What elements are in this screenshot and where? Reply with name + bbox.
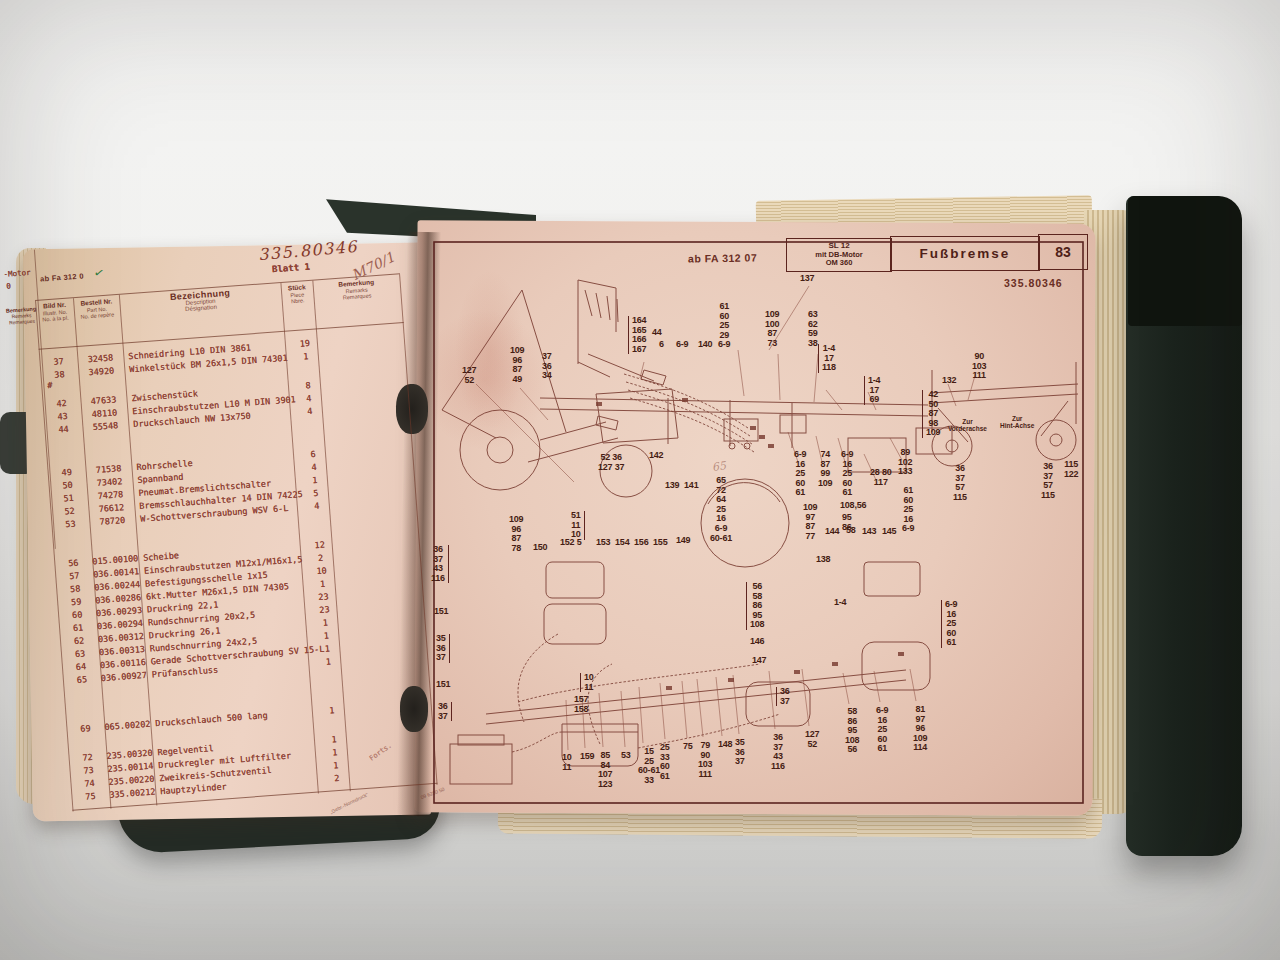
table-cell-qty: 1 — [317, 705, 348, 716]
table-cell-rem — [321, 349, 406, 355]
col-header-bild: Bild Nr. Illustr. No. No. à la pl. — [35, 301, 74, 323]
table-cell-rem — [329, 460, 414, 466]
table-cell-rem — [331, 486, 416, 492]
table-cell-rem — [320, 337, 405, 343]
table-cell-bestell: 065.00202 — [104, 720, 151, 732]
fragment-bemerkung-header: Bemerkung Remarks Remarques — [4, 305, 39, 325]
table-cell-bild: 72 — [68, 752, 107, 764]
diagram-callout: 1-4 — [834, 598, 846, 608]
table-cell-qty: 1 — [321, 760, 352, 771]
diagram-callout: 108,56 — [840, 501, 866, 511]
table-cell-qty: 12 — [304, 540, 335, 551]
table-cell-rem — [340, 616, 425, 622]
table-cell-bild: 43 — [43, 411, 82, 423]
diagram-callout: 148 — [718, 740, 732, 750]
diagram-callout: 90103111 — [972, 352, 986, 381]
diagram-callout: 65726425166-960-61 — [710, 476, 732, 543]
diagram-callout: 42508798109 — [922, 390, 940, 438]
diagram-callout: 75 — [683, 742, 693, 752]
diagram-callout: 363757115 — [1041, 462, 1055, 500]
diagram-callout: 616025166-9 — [902, 486, 914, 534]
diagram-callout: 63625938 — [808, 310, 818, 348]
table-cell-bild: 53 — [51, 519, 90, 531]
diagram-callout: 6-916256061 — [794, 450, 806, 498]
table-cell-bild: 74 — [70, 778, 109, 790]
diagram-callout: 109968749 — [510, 346, 524, 384]
diagram-callout: 115122 — [1064, 460, 1078, 479]
diagram-callout: 151 — [436, 680, 450, 690]
diagram-callout: 52 36127 37 — [598, 453, 624, 472]
table-cell-rem — [338, 577, 423, 583]
diagram-callout: 142 — [649, 451, 663, 461]
table-cell-bild: 60 — [58, 609, 97, 621]
table-cell-qty: 1 — [307, 579, 338, 590]
table-cell-rem — [342, 642, 427, 648]
diagram-callout: 6-916256061 — [941, 600, 957, 648]
diagram-callout: 164165166167 — [628, 316, 646, 354]
table-cell-bild: 58 — [56, 583, 95, 595]
diagram-callout: 147 — [752, 656, 766, 666]
diagram-callout: 153 154 156 155 — [596, 538, 667, 548]
diagram-callout: 1011 — [562, 753, 572, 772]
parts-table: Bild Nr. Illustr. No. No. à la pl. Beste… — [35, 273, 438, 813]
table-cell-rem — [349, 732, 434, 738]
table-cell-qty: 1 — [320, 747, 351, 758]
diagram-callout: 151 — [434, 607, 448, 617]
diagram-callouts: 65 137616025296-910910087736362593816416… — [428, 232, 1090, 810]
table-cell-rem — [335, 538, 420, 544]
table-cell-bestell: 78720 — [89, 515, 136, 527]
table-cell-rem — [343, 655, 428, 661]
diagram-callout: 12752 — [805, 730, 819, 749]
table-cell-rem — [336, 551, 421, 557]
table-cell-bild: 69 — [66, 723, 105, 735]
table-cell-qty: 23 — [309, 605, 340, 616]
diagram-callout: 363757115 — [953, 464, 967, 502]
diagram-callout: 511110 — [571, 511, 585, 540]
table-cell-bild: 61 — [59, 622, 98, 634]
table-cell-rem — [337, 564, 422, 570]
diagram-callout: 25336061 — [660, 743, 670, 781]
table-cell-qty: 1 — [310, 618, 341, 629]
table-cell-bild: 59 — [57, 596, 96, 608]
diagram-callout: 53 — [621, 751, 631, 761]
table-rows: 3732458Schneidring L10 DIN 3861193834920… — [39, 330, 437, 805]
diagram-callout: 58869510856 — [845, 707, 859, 755]
diagram-callout: 1-417118 — [818, 344, 836, 373]
table-cell-bild: 56 — [54, 558, 93, 570]
col-header-stueck: Stück Piece Nbre. — [281, 284, 314, 306]
table-cell-bestell: 34920 — [78, 366, 125, 378]
diagram-callout: 109968778 — [509, 515, 523, 553]
table-cell-qty: 1 — [300, 475, 331, 486]
diagram-callout: 616025296-9 — [718, 302, 730, 350]
table-cell-qty: 2 — [305, 553, 336, 564]
diagram-callout: 819796109114 — [913, 705, 927, 753]
diagram-callout: 44 — [652, 328, 662, 338]
table-cell-qty: 4 — [294, 393, 325, 404]
table-cell-rem — [352, 771, 437, 777]
col-header-bestell: Bestell Nr. Part No. No. de repère — [73, 298, 120, 321]
table-cell-qty: 4 — [299, 462, 330, 473]
diagram-callout: 159 — [580, 752, 594, 762]
diagram-callout: 157158 — [574, 695, 588, 714]
diagram-callout: 58 — [846, 526, 856, 536]
table-cell-bild: 44 — [44, 424, 83, 436]
diagram-callout: 1091008773 — [765, 310, 779, 348]
table-cell-bestell: 335.00212 — [109, 788, 156, 800]
table-cell-qty: 19 — [290, 338, 321, 349]
diagram-callout: 8584107123 — [598, 751, 612, 789]
table-cell-bild: 49 — [47, 467, 86, 479]
table-cell-qty: 1 — [319, 734, 350, 745]
table-cell-bestell: 036.00927 — [101, 671, 148, 683]
axle-label: ZurHint-Achse — [1000, 415, 1034, 429]
table-cell-qty: 1 — [291, 351, 322, 362]
table-cell-qty: 6 — [298, 449, 329, 460]
table-cell-qty: 4 — [295, 406, 326, 417]
table-cell-bild: 42 — [42, 398, 81, 410]
table-cell-bild: 38 — [40, 369, 79, 381]
diagram-callout: 363743116 — [431, 545, 449, 583]
table-cell-bild: 64 — [62, 661, 101, 673]
diagram-callout: 353637 — [735, 738, 745, 767]
binder-cover-strap — [1128, 196, 1242, 326]
diagram-callout: 12752 — [462, 366, 476, 385]
stray-mark: # — [47, 380, 53, 390]
table-cell-bild: 50 — [48, 480, 87, 492]
diagram-callout: 56588695108 — [746, 582, 764, 630]
diagram-callout: 1-41769 — [864, 376, 880, 405]
diagram-callout: 7990103111 — [698, 741, 712, 779]
fragment-motor: -Motor — [3, 268, 31, 279]
table-cell-qty: 5 — [301, 488, 332, 499]
diagram-callout: 145 — [882, 527, 896, 537]
fragment-zero: 0 — [6, 281, 11, 290]
diagram-callout: 152 5 — [560, 538, 582, 548]
table-cell-bild: 75 — [71, 791, 110, 803]
table-cell-rem — [341, 629, 426, 635]
table-cell-rem — [330, 473, 415, 479]
table-cell-bild: 52 — [50, 506, 89, 518]
diagram-callout: 137 — [800, 274, 814, 284]
table-cell-bild: 63 — [61, 648, 100, 660]
diagram-callout: 6-916256061 — [876, 706, 888, 754]
table-cell-bild: 73 — [69, 765, 108, 777]
diagram-callout: 146 — [750, 637, 764, 647]
table-cell-rem — [324, 391, 409, 397]
diagram-callout: 109978777 — [803, 503, 817, 541]
table-cell-rem — [328, 447, 413, 453]
diagram-callout: 138 — [816, 555, 830, 565]
table-cell-bild: 57 — [55, 570, 94, 582]
table-cell-qty: 8 — [293, 380, 324, 391]
diagram-callout: 3637 — [776, 687, 790, 706]
table-cell-qty: 10 — [306, 566, 337, 577]
table-cell-qty: 4 — [302, 501, 333, 512]
table-cell-bild: 65 — [63, 674, 102, 686]
table-cell-qty: 1 — [312, 643, 343, 654]
table-cell-bild: 51 — [49, 493, 88, 505]
table-cell-rem — [323, 378, 408, 384]
diagram-callout: 152560-6133 — [638, 747, 660, 785]
table-cell-rem — [339, 603, 424, 609]
table-cell-qty: 1 — [311, 630, 342, 641]
table-cell-rem — [325, 404, 410, 410]
diagram-callout: 3637 — [438, 702, 452, 721]
diagram-callout: 1011 — [580, 673, 594, 692]
table-cell-qty: 1 — [313, 656, 344, 667]
diagram-callout: 363743116 — [771, 733, 785, 771]
diagram-callout: 6-9 — [676, 340, 688, 350]
diagram-callout: 6 — [659, 340, 664, 350]
diagram-callout: 143 — [862, 527, 876, 537]
photo-of-parts-catalog: -Motor 0 Bemerkung Remarks Remarques 335… — [0, 0, 1280, 960]
table-cell-qty: 2 — [322, 773, 353, 784]
diagram-callout: 353637 — [436, 634, 450, 663]
table-cell-bild: 37 — [39, 356, 78, 368]
diagram-callout: 140 — [698, 340, 712, 350]
table-cell-bestell: 55548 — [82, 421, 129, 433]
diagram-callout: 89102133 — [898, 448, 912, 477]
col-header-bemerkung: Bemerkung Remarks Remarques — [313, 277, 401, 303]
ghost-handwritten-note: 65 — [711, 459, 727, 474]
diagram-callout: 149 — [676, 536, 690, 546]
table-cell-rem — [338, 590, 423, 596]
table-cell-rem — [351, 758, 436, 764]
diagram-callout: 144 — [825, 527, 839, 537]
diagram-callout: 6-916256061 — [841, 450, 853, 498]
diagram-callout: 373634 — [542, 352, 552, 381]
axle-label: ZurVorderachse — [948, 418, 987, 432]
diagram-callout: 28 80117 — [870, 468, 892, 487]
diagram-callout: 139 141 — [665, 481, 698, 491]
diagram-callout: 150 — [533, 543, 547, 553]
diagram-callout: 748799109 — [818, 450, 832, 488]
table-cell-rem — [332, 499, 417, 505]
table-cell-qty: 23 — [308, 592, 339, 603]
table-cell-bild: 62 — [60, 635, 99, 647]
diagram-callout: 132 — [942, 376, 956, 386]
table-cell-rem — [347, 704, 432, 710]
